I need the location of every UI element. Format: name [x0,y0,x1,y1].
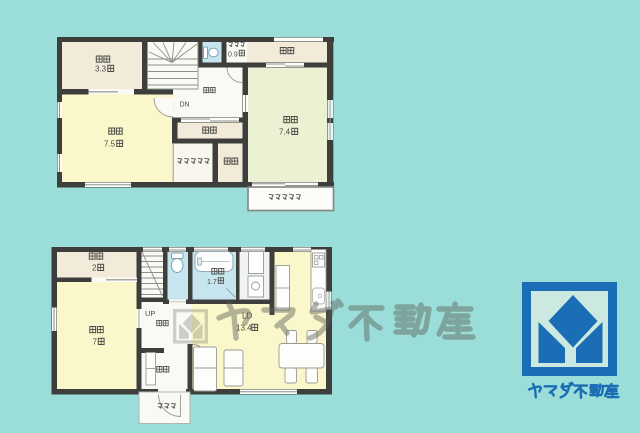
svg-text:0.9: 0.9 [228,52,238,59]
svg-text:UP: UP [145,309,155,318]
svg-text:3.3: 3.3 [95,65,107,74]
svg-text:7: 7 [93,338,98,347]
svg-text:2: 2 [92,264,97,273]
svg-text:DN: DN [180,102,190,109]
svg-text:7.5: 7.5 [104,140,116,149]
svg-text:7.4: 7.4 [279,128,291,137]
svg-text:1.7: 1.7 [207,279,217,286]
